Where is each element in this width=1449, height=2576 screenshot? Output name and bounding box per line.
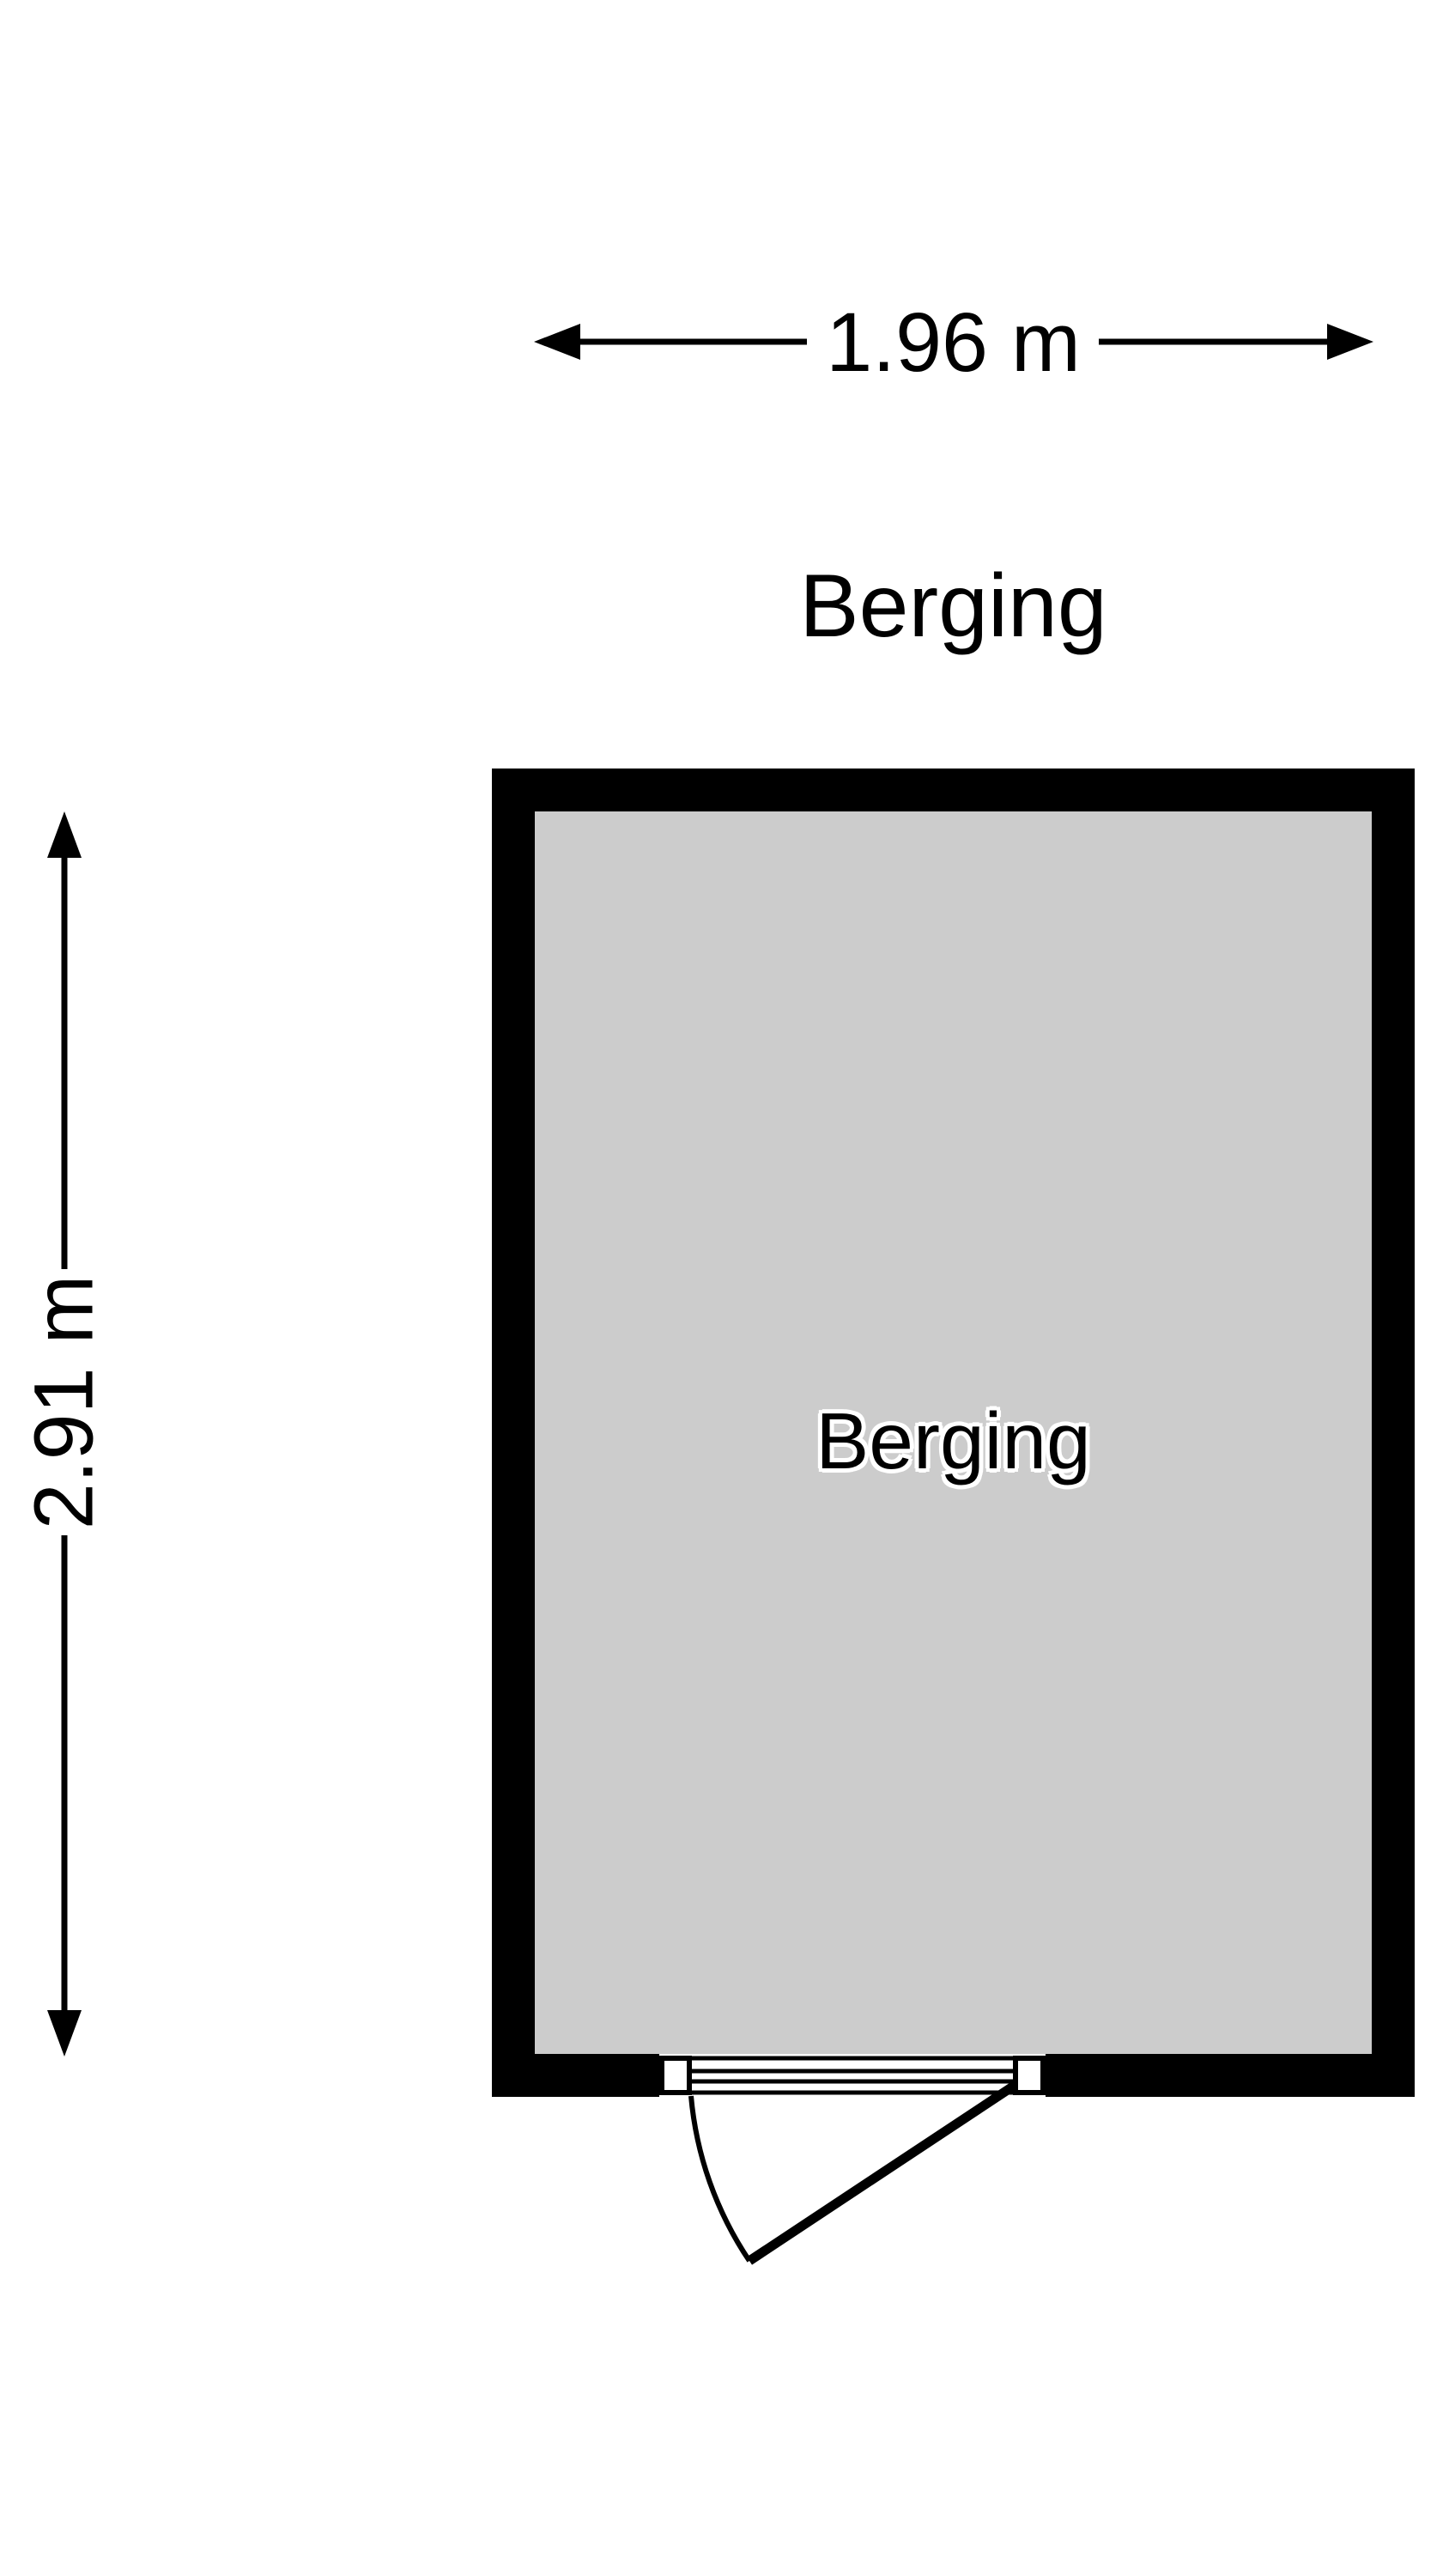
wall-left bbox=[492, 769, 535, 2097]
depth-arrowhead-top-icon bbox=[47, 811, 82, 858]
floorplan-canvas: 1.96 m Berging Berging 2.91 m bbox=[0, 0, 1449, 2576]
door-post-right bbox=[1016, 2058, 1043, 2093]
door-swing-arc bbox=[691, 2096, 749, 2261]
wall-bottom-right bbox=[1046, 2054, 1415, 2097]
depth-dimension-label: 2.91 m bbox=[22, 1275, 106, 1530]
wall-top bbox=[492, 769, 1415, 811]
door bbox=[662, 2058, 1043, 2261]
door-leaf bbox=[749, 2068, 1041, 2261]
width-dimension-label: 1.96 m bbox=[535, 284, 1372, 399]
door-post-left bbox=[662, 2058, 689, 2093]
wall-bottom-left bbox=[492, 2054, 659, 2097]
room-label: Berging bbox=[535, 1376, 1372, 1505]
depth-arrowhead-bottom-icon bbox=[47, 2010, 82, 2057]
wall-right bbox=[1372, 769, 1415, 2097]
plan-title: Berging bbox=[492, 550, 1415, 662]
